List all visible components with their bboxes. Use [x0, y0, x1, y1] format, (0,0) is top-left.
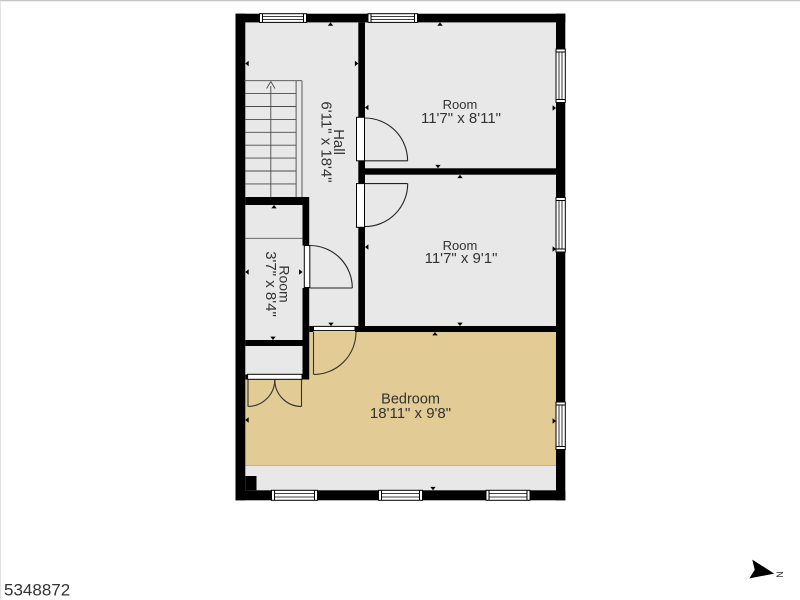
svg-text:N: N	[774, 571, 784, 578]
svg-text:11'7" x 8'11": 11'7" x 8'11"	[421, 110, 501, 127]
svg-text:3'7" x 8'4": 3'7" x 8'4"	[262, 251, 279, 317]
svg-text:6'11" x 18'4": 6'11" x 18'4"	[317, 101, 334, 182]
svg-text:18'11" x 9'8": 18'11" x 9'8"	[370, 405, 451, 422]
svg-text:11'7" x 9'1": 11'7" x 9'1"	[425, 250, 498, 267]
svg-text:5348872: 5348872	[4, 581, 70, 600]
